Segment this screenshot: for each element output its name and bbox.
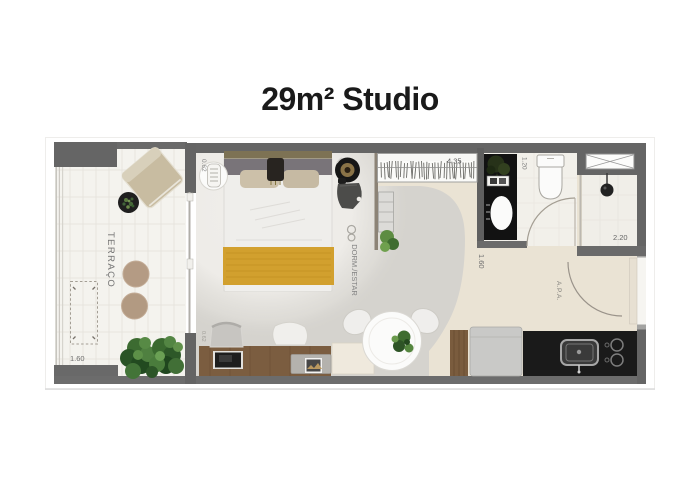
svg-text:TERRAÇO: TERRAÇO	[105, 232, 116, 288]
svg-text:DORM./ESTAR: DORM./ESTAR	[350, 244, 359, 296]
svg-text:A.P.A.: A.P.A.	[555, 281, 562, 301]
svg-text:2.20: 2.20	[613, 233, 628, 242]
svg-text:0.62: 0.62	[200, 331, 206, 342]
svg-text:0.62: 0.62	[200, 159, 207, 172]
svg-text:1.60: 1.60	[477, 254, 486, 269]
svg-text:4.35: 4.35	[447, 157, 462, 166]
svg-text:1.20: 1.20	[521, 157, 528, 170]
svg-text:29m² Studio: 29m² Studio	[261, 81, 439, 117]
svg-text:1.60: 1.60	[70, 354, 85, 363]
